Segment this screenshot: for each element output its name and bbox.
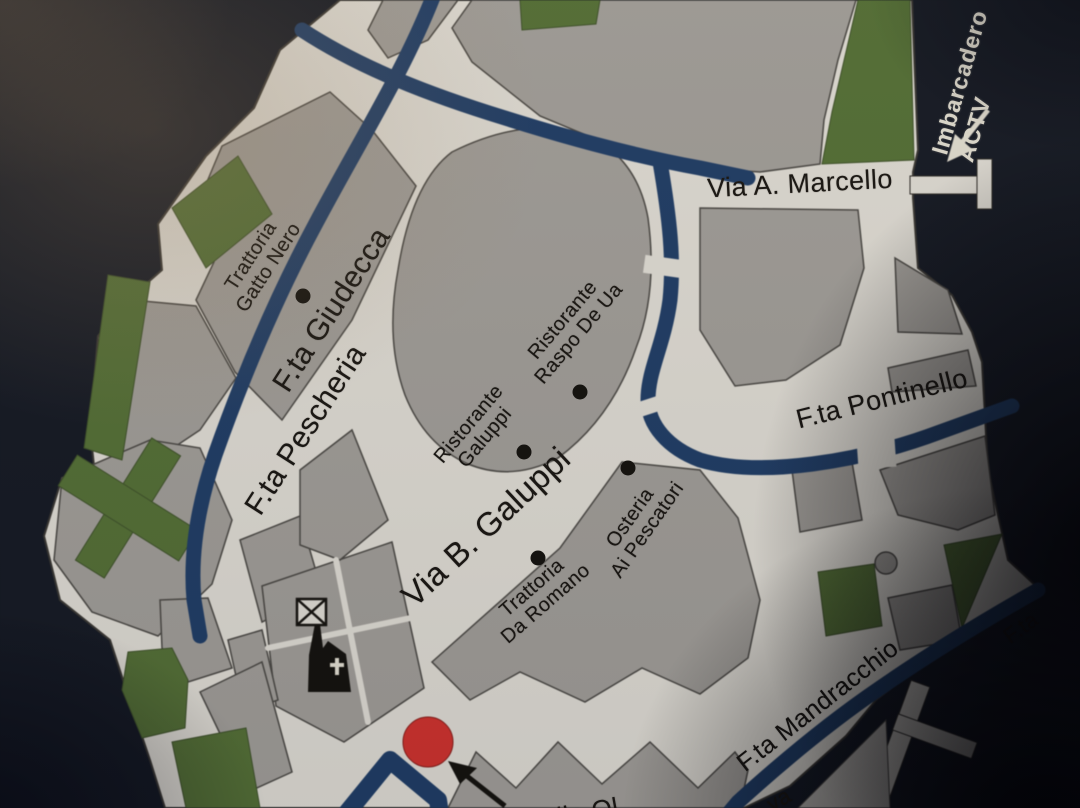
burano-street-map-photo: Via A. MarcelloF.ta GiudeccaF.ta Pescher… <box>0 0 1080 808</box>
map-canvas <box>0 0 1080 808</box>
plaza-circle <box>875 552 897 574</box>
actv-pier <box>910 176 986 194</box>
you-are-here-marker <box>403 717 453 767</box>
campanile-icon <box>297 599 326 625</box>
